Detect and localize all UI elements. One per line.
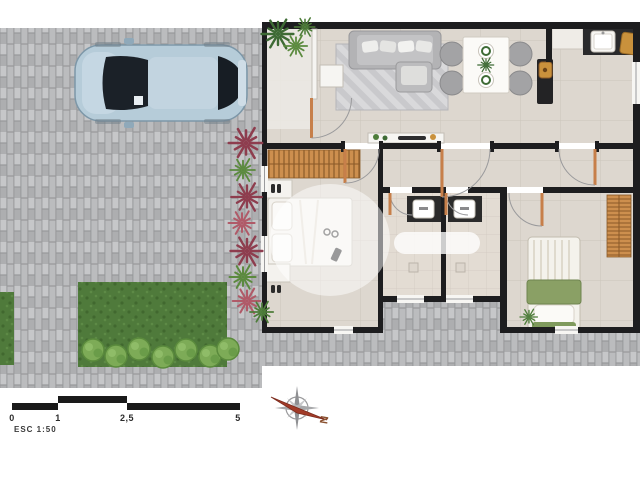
window — [261, 236, 268, 272]
dining-chair — [440, 42, 464, 66]
dining-chair — [508, 71, 532, 95]
console-plant — [383, 136, 388, 141]
scale-segment — [127, 403, 240, 410]
window — [632, 62, 640, 104]
door-leaf — [594, 149, 597, 185]
pillow — [534, 305, 574, 324]
kitchen-wall-stub — [546, 22, 552, 62]
plate — [479, 44, 494, 59]
dining-chair — [440, 71, 464, 95]
scale-segment — [58, 396, 127, 403]
scale-esc-label: ESC 1:50 — [14, 425, 57, 434]
nightstand — [266, 264, 290, 282]
lawn-strip — [0, 292, 14, 365]
wall-bed1-bath — [378, 149, 383, 333]
scale-label-2-5: 2,5 — [120, 413, 134, 423]
car-roof — [148, 57, 218, 109]
shower-drain — [456, 263, 465, 272]
scale-label-0: 0 — [9, 413, 15, 423]
slippers — [271, 285, 275, 293]
door-leaf — [344, 149, 347, 183]
shower-drain — [409, 263, 418, 272]
car-mirror — [124, 38, 134, 44]
window — [261, 166, 268, 192]
exterior-wall-top — [262, 22, 640, 29]
door-leaf — [541, 193, 544, 226]
entry-porch — [267, 29, 313, 129]
bed-blanket — [527, 280, 581, 304]
floor-plan-image: 0 1 2,5 5 ESC 1:50 N — [0, 0, 640, 480]
wall-bath-bed2 — [500, 187, 507, 333]
dining-chair — [508, 42, 532, 66]
window — [397, 295, 424, 303]
dining-set — [440, 37, 532, 95]
pillow — [272, 234, 292, 262]
window — [555, 326, 578, 334]
door-leaf — [441, 149, 444, 197]
car-mirror — [124, 122, 134, 128]
console-plant — [373, 134, 379, 140]
door-leaf — [310, 98, 313, 138]
scale-label-5: 5 — [235, 413, 241, 423]
window — [446, 295, 473, 303]
kitchen-counter-white — [552, 28, 583, 49]
pillow — [272, 202, 292, 230]
wall-bed1-bottom — [262, 327, 383, 333]
door-leaf — [389, 193, 392, 215]
window — [334, 326, 353, 334]
tv-tray — [398, 136, 426, 140]
scale-segment — [12, 403, 58, 410]
slippers — [271, 184, 275, 193]
faucet — [602, 32, 605, 35]
entry-partition-wall — [312, 29, 317, 99]
plate — [479, 73, 494, 88]
entry-ottoman — [320, 65, 343, 87]
car-sunroof — [134, 96, 143, 105]
floor-plan-canvas: 0 1 2,5 5 ESC 1:50 N — [0, 0, 640, 480]
console-decor — [430, 134, 436, 140]
car — [75, 38, 247, 128]
scale-label-1: 1 — [55, 413, 61, 423]
door-leaf — [445, 193, 448, 215]
